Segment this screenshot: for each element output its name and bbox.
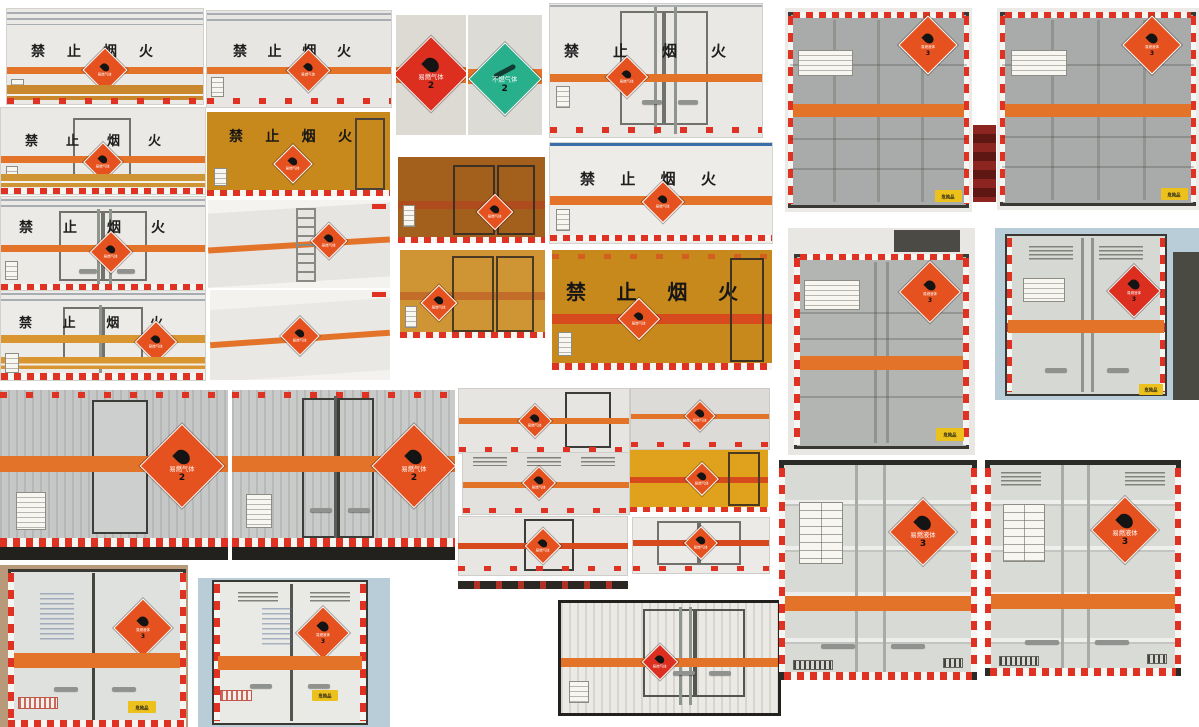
photo-box-side-3: 禁止烟火 易燃气体 xyxy=(549,142,773,244)
top-markers xyxy=(0,392,228,398)
door-lock-rod xyxy=(874,262,877,443)
placard-text: 易燃气体 xyxy=(286,167,300,171)
reflector-edge-left xyxy=(794,258,800,445)
placard-text: 不燃气体 xyxy=(492,77,517,83)
door-handle xyxy=(709,671,731,675)
no-fire-banner: 禁止烟火 xyxy=(580,172,716,187)
gold-band xyxy=(1,174,205,187)
reflector-row xyxy=(458,566,628,571)
placard-text: 易燃气体 xyxy=(104,255,118,259)
placard-text: 易燃气体 xyxy=(695,482,709,486)
door-handle xyxy=(54,687,78,691)
placard-text: 易燃气体 xyxy=(528,424,542,428)
door-handle xyxy=(308,684,330,688)
flammable-gas-placard: 易燃气体2 xyxy=(396,36,466,112)
license-label xyxy=(18,697,58,709)
photo-placard-non-flammable-gas: 不燃气体2 xyxy=(468,15,542,135)
placard-text: 易燃气体 xyxy=(694,546,708,550)
panel-seam xyxy=(1002,166,1194,168)
id-tag xyxy=(943,658,963,668)
roof-rails xyxy=(7,12,203,25)
flammable-gas-placard: 易燃气体 xyxy=(684,400,715,431)
flame-icon xyxy=(287,155,298,166)
flame-icon xyxy=(97,153,108,164)
orange-stripe xyxy=(793,104,964,117)
door-lock-rod xyxy=(1081,238,1084,392)
reflector-edge-left xyxy=(985,468,991,668)
reflector-row-top xyxy=(800,254,963,260)
placard-text: 易燃液体 xyxy=(921,46,935,50)
flammable-gas-placard: 易燃气体 xyxy=(522,466,556,500)
door-handle xyxy=(1107,368,1129,372)
placard-text: 易燃气体 xyxy=(96,165,110,169)
photo-truck-rear-bottom-left: 易燃液体3 危险品 xyxy=(0,565,188,727)
door-handle xyxy=(112,687,136,691)
photo-small-rear-doors: 易燃气体 xyxy=(632,517,770,574)
corner-marker xyxy=(372,204,386,209)
flame-icon xyxy=(921,31,935,45)
bumper xyxy=(0,547,228,560)
info-plate xyxy=(1011,50,1067,76)
placard-text: 易燃气体 xyxy=(656,205,670,209)
danger-goods-plate: 危险品 xyxy=(312,690,338,701)
photo-container-rear-2: 易燃液体3 危险品 xyxy=(997,8,1199,210)
vent-grille xyxy=(1029,246,1073,262)
reflector-edge-left xyxy=(8,573,14,723)
photo-truck-sliver xyxy=(973,125,996,202)
placard-text: 易燃气体 xyxy=(432,306,446,310)
door-handle xyxy=(79,269,97,273)
reflector-edge-right xyxy=(1175,468,1181,668)
door-frame xyxy=(728,452,760,506)
photo-truck-rear-large-2: 易燃液体3 xyxy=(985,460,1181,676)
flame-icon xyxy=(537,537,548,548)
info-plate xyxy=(556,86,570,108)
no-fire-banner: 禁止烟火 xyxy=(566,282,738,302)
reflector-row xyxy=(990,668,1176,676)
photo-truck-rear-wide: 易燃气体 xyxy=(558,600,781,716)
reflector-row xyxy=(550,235,772,241)
placard-text: 易燃气体 xyxy=(532,486,546,490)
vent-grille xyxy=(310,592,350,604)
placard-text: 易燃气体 xyxy=(322,244,336,248)
photo-small-side-door: 易燃气体 xyxy=(458,388,630,454)
flame-icon xyxy=(404,447,425,468)
door-handle xyxy=(1095,640,1129,644)
photo-box-rear-gold: 禁止烟火 易燃气体 xyxy=(207,112,390,196)
danger-goods-plate: 危险品 xyxy=(1161,188,1188,200)
placard-text: 易燃气体 xyxy=(169,466,194,472)
placard-text: 易燃气体 xyxy=(149,345,163,349)
reflector-row xyxy=(7,98,203,104)
orange-stripe xyxy=(1005,104,1191,117)
info-plate xyxy=(798,50,853,76)
door-lock-rod xyxy=(855,465,858,675)
roof-rails xyxy=(207,13,391,21)
reflector-edge-right xyxy=(964,16,969,204)
door-handle xyxy=(117,269,135,273)
roof-rails xyxy=(1,293,205,305)
reflector-edge-right xyxy=(180,573,186,723)
door-lock-rod xyxy=(1061,465,1064,671)
class-number: 3 xyxy=(321,639,325,645)
class-number: 2 xyxy=(428,82,434,91)
photo-box-side-ladder: 易燃气体 xyxy=(208,200,390,288)
door-handle xyxy=(348,508,370,512)
placard-text: 易燃液体 xyxy=(316,634,330,638)
door-lock-rod xyxy=(679,607,682,705)
placard-text: 易燃气体 xyxy=(98,73,112,77)
flame-icon xyxy=(913,513,934,534)
class-number: 2 xyxy=(179,474,185,483)
flammable-gas-placard: 易燃气体 xyxy=(618,298,660,340)
door-frame xyxy=(730,258,764,362)
vent-grille xyxy=(238,592,278,604)
rear-door-right xyxy=(496,256,534,332)
rear-frame xyxy=(985,460,1181,676)
door-lock-rod xyxy=(883,465,886,675)
flame-icon xyxy=(657,193,668,204)
photo-small-side-gold: 易燃气体 xyxy=(630,450,768,512)
rear-door-right xyxy=(497,165,535,235)
info-plate xyxy=(214,168,227,186)
manufacturer-label xyxy=(999,656,1039,666)
rear-frame xyxy=(779,460,977,680)
danger-goods-plate: 危险品 xyxy=(128,701,156,713)
info-plate xyxy=(16,492,46,530)
door-lock-rod xyxy=(886,262,889,443)
bumper xyxy=(458,581,628,589)
info-plate xyxy=(211,77,224,97)
photo-container-rear-1: 易燃液体3 危险品 xyxy=(785,8,972,212)
photo-placard-flammable-gas: 易燃气体2 xyxy=(396,15,466,135)
manufacturer-label xyxy=(793,660,833,670)
info-plate xyxy=(804,280,860,310)
door-handle xyxy=(1045,368,1067,372)
flame-icon xyxy=(654,653,665,664)
photo-small-side-plain: 易燃气体 xyxy=(630,388,770,450)
no-fire-banner: 禁止烟火 xyxy=(31,45,153,59)
photo-box-side-1: 禁止烟火 易燃气体 xyxy=(6,8,204,105)
reflector-row xyxy=(400,332,545,338)
door-lock-rod xyxy=(674,7,677,134)
notice-text-block xyxy=(262,608,292,648)
orange-stripe xyxy=(14,653,180,668)
flame-icon xyxy=(105,243,116,254)
reflector-edge-right xyxy=(963,258,969,445)
orange-stripe xyxy=(991,594,1175,609)
door-lock-rod xyxy=(1087,465,1090,671)
door-handle xyxy=(891,644,925,648)
door-lock-rod xyxy=(92,573,95,723)
door-handle xyxy=(673,671,695,675)
photo-collage: 禁止烟火 易燃气体 禁止烟火 易燃气体 易燃气体2 不燃气体2 xyxy=(0,0,1199,727)
placard-text: 易燃液体 xyxy=(1112,530,1137,536)
spec-table-plate xyxy=(1003,504,1045,562)
photo-box-rear-doors-1: 禁止烟火 易燃气体 xyxy=(549,3,763,138)
placard-text: 易燃液体 xyxy=(1145,46,1159,50)
reflector-row xyxy=(398,237,545,243)
door-handle xyxy=(821,644,855,648)
door-handle xyxy=(1025,640,1059,644)
rear-ladder xyxy=(296,208,316,282)
photo-truck-rear-large-1: 易燃液体3 xyxy=(779,460,977,680)
reflector-row xyxy=(552,363,772,370)
flame-icon xyxy=(621,68,632,79)
vent-grille xyxy=(473,457,507,466)
reflector-row xyxy=(207,98,391,104)
flame-icon xyxy=(172,447,193,468)
door-handle xyxy=(250,684,272,688)
reflector-edge-left xyxy=(779,468,785,672)
id-tag xyxy=(1147,654,1167,664)
reflector-row-top xyxy=(1005,12,1191,18)
placard-text: 易燃液体 xyxy=(136,629,150,633)
door-frame xyxy=(355,118,385,190)
bumper xyxy=(232,547,455,560)
flame-icon xyxy=(316,619,330,633)
reflector-row xyxy=(232,538,455,547)
reflector-edge-right xyxy=(1191,16,1196,202)
placard-text: 易燃气体 xyxy=(401,466,426,472)
placard-text: 易燃气体 xyxy=(693,419,707,423)
reflector-row xyxy=(1,373,205,380)
photo-box-side-perspective: 易燃气体 xyxy=(210,290,390,380)
placard-text: 易燃气体 xyxy=(293,339,307,343)
flame-icon xyxy=(489,203,500,214)
flame-icon xyxy=(99,61,110,72)
rear-door-left xyxy=(452,256,494,332)
flame-icon xyxy=(421,55,442,76)
flame-icon xyxy=(923,278,937,292)
reflector-row xyxy=(633,566,769,571)
class-number: 3 xyxy=(141,634,145,640)
danger-goods-plate: 危险品 xyxy=(1139,384,1163,395)
photo-van-rear-large: 易燃气体2 xyxy=(232,390,455,560)
photo-box-rear-vented: 易燃液体3 危险品 xyxy=(995,228,1199,400)
no-fire-banner: 禁止烟火 xyxy=(564,44,726,59)
panel-seam xyxy=(790,138,967,140)
flame-icon xyxy=(529,412,540,423)
flame-icon xyxy=(694,407,705,418)
notice-text-block xyxy=(40,593,74,641)
flame-icon xyxy=(696,470,707,481)
no-fire-banner: 禁止烟火 xyxy=(19,317,163,330)
corner-marker xyxy=(372,292,386,297)
reflector-row xyxy=(463,508,629,513)
reflector-edge-right xyxy=(971,468,977,672)
no-fire-banner: 禁止烟火 xyxy=(19,221,165,235)
non-flammable-gas-placard: 不燃气体2 xyxy=(468,42,542,116)
flammable-gas-placard: 易燃气体 xyxy=(273,144,313,184)
class-number: 2 xyxy=(502,85,508,94)
orange-stripe xyxy=(785,596,971,611)
reflector-row xyxy=(631,442,769,447)
orange-stripe xyxy=(1008,320,1164,333)
reflector-row xyxy=(0,538,228,547)
no-fire-banner: 禁止烟火 xyxy=(233,45,351,59)
info-plate xyxy=(558,332,572,356)
vent-grille xyxy=(1099,246,1143,262)
panel-seam xyxy=(1002,136,1194,138)
photo-box-rear-doors-3: 禁止烟火 易燃气体 xyxy=(0,290,206,381)
class-number: 3 xyxy=(1150,51,1154,57)
flame-icon xyxy=(433,294,444,305)
info-plate xyxy=(1023,278,1065,302)
door-lock-rod xyxy=(290,584,293,721)
roof-rails xyxy=(1,199,205,210)
placard-text: 易燃气体 xyxy=(653,665,667,669)
placard-text: 易燃液体 xyxy=(1127,292,1141,296)
orange-stripe xyxy=(218,656,362,670)
vent-grille xyxy=(1125,472,1165,486)
vent-grille xyxy=(527,457,561,466)
flame-icon xyxy=(1115,511,1136,532)
reflector-row xyxy=(1,188,205,194)
placard-text: 易燃气体 xyxy=(536,549,550,553)
info-plate xyxy=(5,261,18,280)
orange-stripe xyxy=(550,74,762,82)
no-fire-banner: 禁止烟火 xyxy=(229,130,352,144)
reflector-row xyxy=(630,507,768,512)
flame-icon xyxy=(323,232,334,243)
rear-door-right xyxy=(695,609,745,697)
photo-box-rear-doors-2: 禁止烟火 易燃气体 xyxy=(0,196,206,291)
class-number: 3 xyxy=(926,51,930,57)
vent-grille xyxy=(581,457,615,466)
flame-icon xyxy=(695,534,706,545)
canopy xyxy=(894,230,960,252)
panel-seam xyxy=(800,396,963,398)
flame-icon xyxy=(136,614,150,628)
class-number: 3 xyxy=(1122,538,1128,547)
background-pole xyxy=(1173,252,1199,400)
door-handle xyxy=(642,100,662,104)
info-plate xyxy=(246,494,272,528)
vent-grille xyxy=(1001,472,1041,486)
orange-stripe xyxy=(800,356,963,370)
placard-text: 易燃气体 xyxy=(488,215,502,219)
reflector-row xyxy=(207,190,390,196)
class-number: 3 xyxy=(928,298,932,304)
flame-icon xyxy=(294,327,305,338)
photo-small-side-door-2: 易燃气体 xyxy=(458,516,628,590)
info-plate xyxy=(5,353,19,373)
placard-text: 易燃气体 xyxy=(301,74,315,78)
flame-icon xyxy=(533,474,544,485)
info-plate xyxy=(403,205,415,227)
gold-band xyxy=(1,357,205,369)
spec-table-plate xyxy=(799,502,843,564)
reflector-edge-right xyxy=(1160,238,1165,392)
no-fire-banner: 禁止烟火 xyxy=(25,135,161,148)
photo-box-side-with-door: 禁止烟火 易燃气体 xyxy=(0,107,206,195)
reflector-row-top xyxy=(793,12,964,18)
flame-icon xyxy=(633,310,644,321)
info-plate xyxy=(556,209,570,231)
photo-box-rear-amber-dark: 易燃气体 xyxy=(398,157,545,243)
info-plate xyxy=(405,306,417,328)
flammable-gas-placard: 易燃气体 xyxy=(685,462,719,496)
placard-text: 易燃液体 xyxy=(910,532,935,538)
roof-edge xyxy=(550,143,772,146)
placard-text: 易燃气体 xyxy=(632,322,646,326)
license-label xyxy=(220,690,252,701)
photo-container-rear-3: 易燃液体3 危险品 xyxy=(788,228,975,455)
placard-text: 易燃液体 xyxy=(923,293,937,297)
reflector-row xyxy=(550,127,762,133)
class-number: 2 xyxy=(411,474,417,483)
photo-truck-rear-bottom-left-2: 易燃液体3 危险品 xyxy=(198,578,390,727)
class-number: 3 xyxy=(920,540,926,549)
door-handle xyxy=(310,508,332,512)
rear-door-right xyxy=(664,11,708,125)
photo-small-side-vented: 易燃气体 xyxy=(462,452,630,515)
reflector-edge-left xyxy=(1007,238,1012,392)
door-lock-rod xyxy=(654,7,657,134)
reflector-row xyxy=(784,672,972,680)
flame-icon xyxy=(150,333,161,344)
flame-icon xyxy=(1145,31,1159,45)
reflector-row xyxy=(8,720,186,727)
panel-seam xyxy=(800,338,963,340)
photo-box-side-gold-large: 禁止烟火 易燃气体 xyxy=(552,250,772,370)
placard-text: 易燃气体 xyxy=(418,74,443,80)
panel-seam xyxy=(790,168,967,170)
danger-goods-plate: 危险品 xyxy=(935,190,962,202)
flammable-gas-placard: 易燃气体 xyxy=(642,181,684,223)
placard-text: 易燃气体 xyxy=(620,80,634,84)
info-plate xyxy=(569,681,589,703)
flammable-gas-placard: 易燃气体 xyxy=(518,404,552,438)
reflector-edge-right xyxy=(360,584,366,721)
door-handle xyxy=(678,100,698,104)
photo-van-side-large: 易燃气体2 xyxy=(0,390,228,560)
photo-box-rear-amber-light: 易燃气体 xyxy=(400,250,545,338)
photo-box-side-2: 禁止烟火 易燃气体 xyxy=(206,10,392,108)
flame-icon xyxy=(1127,277,1141,291)
flame-icon xyxy=(303,62,314,73)
door-lock-rod xyxy=(1091,238,1094,392)
class-number: 3 xyxy=(1132,297,1136,303)
danger-goods-plate: 危险品 xyxy=(936,428,964,441)
door-lock-rod xyxy=(689,607,692,705)
